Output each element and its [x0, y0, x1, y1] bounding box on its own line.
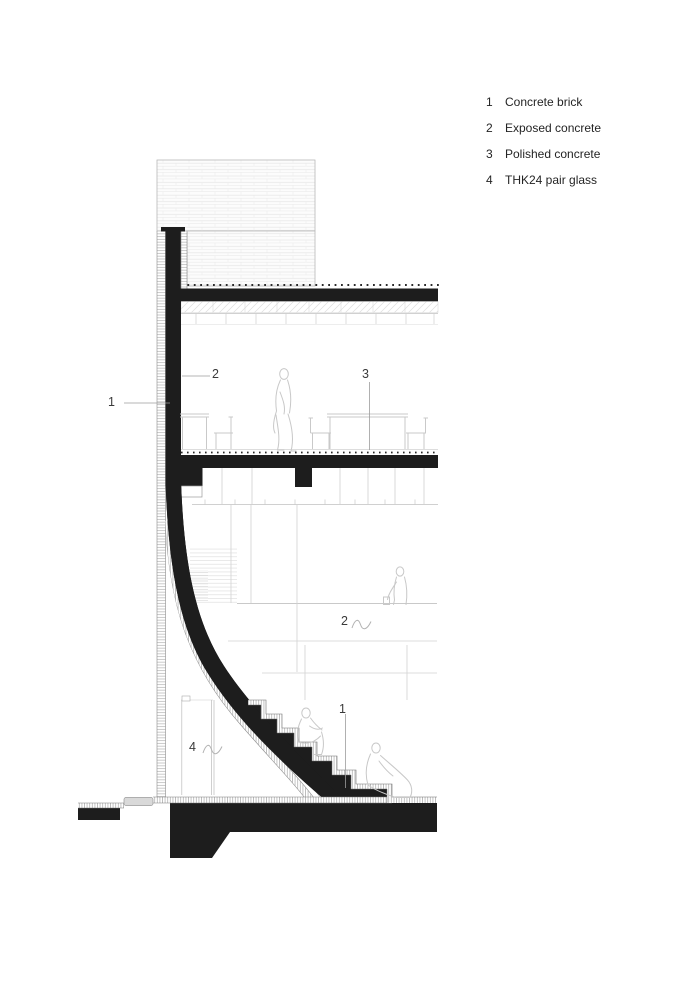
- second-floor-slab: [166, 450, 439, 505]
- callout-polished-floor: 3: [362, 368, 369, 380]
- mezzanine-lines: [214, 604, 437, 674]
- materials-legend: 1 Concrete brick 2 Exposed concrete 3 Po…: [486, 95, 601, 199]
- legend-item-number: 2: [486, 121, 496, 135]
- legend-item-label: THK24 pair glass: [505, 173, 597, 187]
- legend-item-number: 1: [486, 95, 496, 109]
- legend-item-label: Concrete brick: [505, 95, 582, 109]
- foundation: [78, 803, 437, 858]
- outer-facade-band: [157, 231, 166, 797]
- callout-stair-brick: 1: [339, 703, 346, 715]
- legend-item: 2 Exposed concrete: [486, 121, 601, 135]
- furniture: [180, 414, 428, 449]
- legend-item-label: Exposed concrete: [505, 121, 601, 135]
- callout-exposed-concrete-mezzanine: 2: [341, 615, 348, 627]
- legend-item: 1 Concrete brick: [486, 95, 601, 109]
- figure-walking-upper: [274, 369, 296, 451]
- chair: [309, 418, 332, 449]
- chair: [214, 417, 233, 449]
- legend-item-number: 4: [486, 173, 496, 187]
- callout-exposed-concrete-wall: 2: [212, 368, 219, 380]
- table: [180, 414, 209, 449]
- callout-wall-brick: 1: [108, 396, 115, 408]
- roof-slab: [166, 285, 444, 325]
- chair: [406, 418, 428, 449]
- section-sheet: 1 Concrete brick 2 Exposed concrete 3 Po…: [0, 0, 700, 990]
- legend-item-label: Polished concrete: [505, 147, 600, 161]
- callout-pair-glass: 4: [189, 741, 196, 753]
- legend-item-number: 3: [486, 147, 496, 161]
- legend-item: 3 Polished concrete: [486, 147, 601, 161]
- figure-walking-mezzanine: [384, 567, 407, 605]
- legend-item: 4 THK24 pair glass: [486, 173, 601, 187]
- table: [327, 414, 408, 449]
